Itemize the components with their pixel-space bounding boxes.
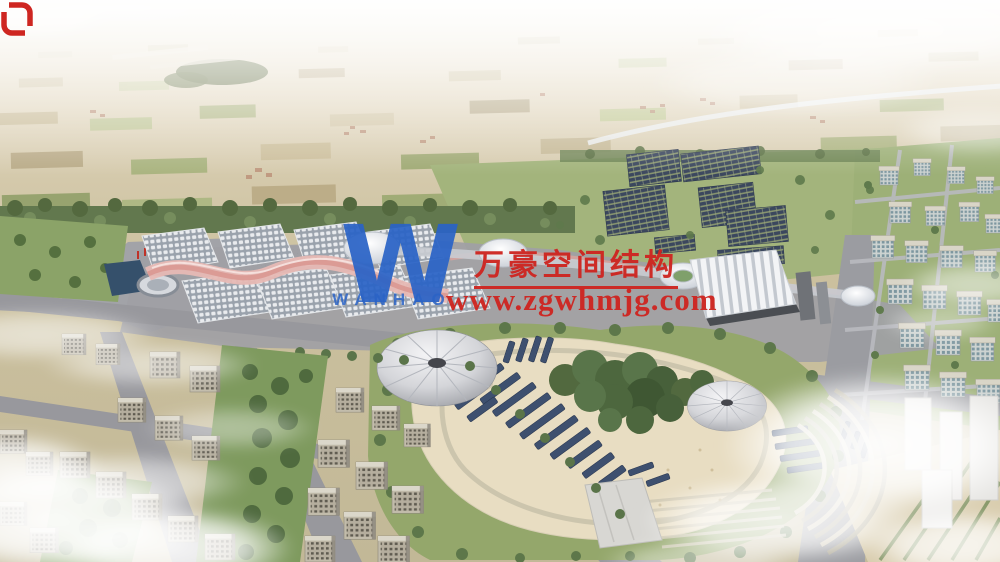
- screenshot-root: W WANHAO 万豪空间结构 www.zgwhmjg.com: [0, 0, 1000, 562]
- aerial-scene: [0, 0, 1000, 562]
- tent-canopy-large: [377, 330, 497, 406]
- left-green-strip: [0, 216, 128, 302]
